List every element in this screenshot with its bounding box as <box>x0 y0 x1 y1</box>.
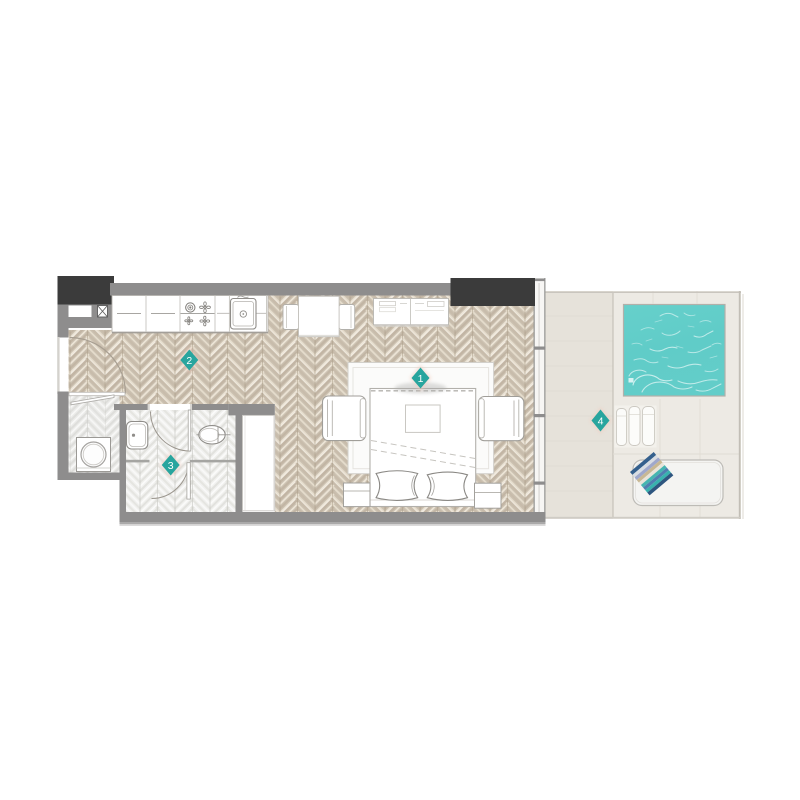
svg-text:4: 4 <box>598 416 604 428</box>
svg-text:3: 3 <box>168 460 174 472</box>
svg-text:1: 1 <box>418 373 424 385</box>
svg-text:2: 2 <box>186 355 192 367</box>
